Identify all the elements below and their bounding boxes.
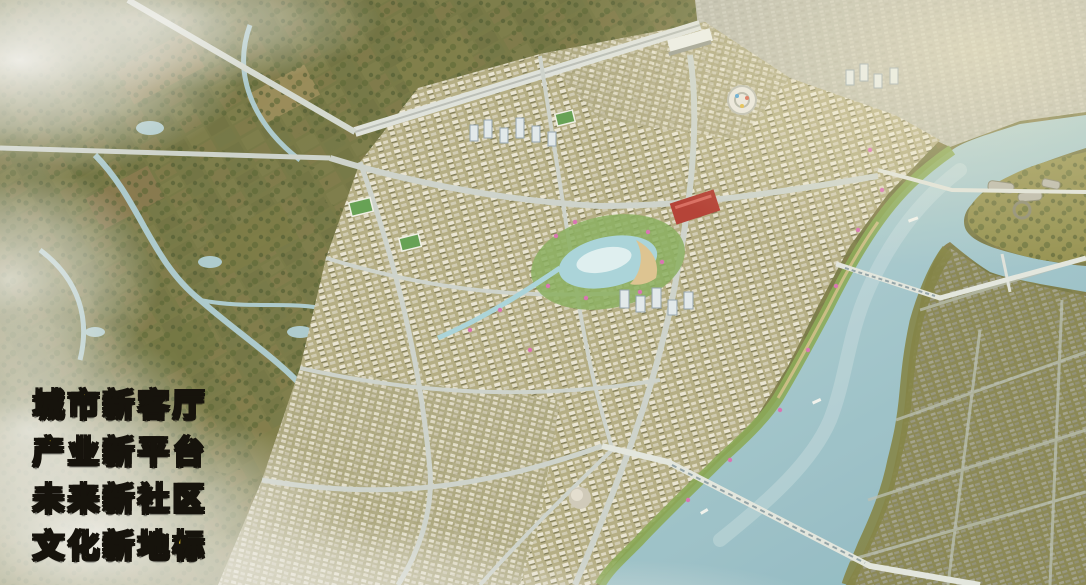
slogan-line-3: 未来新社区 [33, 477, 208, 524]
slogan-line-1: 城市新客厅 [33, 383, 208, 430]
slogan-line-4: 文化新地标 [33, 524, 208, 571]
slogan-overlay: 城市新客厅 产业新平台 未来新社区 文化新地标 [33, 383, 208, 571]
masterplan-aerial-render: 城市新客厅 产业新平台 未来新社区 文化新地标 [0, 0, 1086, 585]
slogan-line-2: 产业新平台 [33, 430, 208, 477]
